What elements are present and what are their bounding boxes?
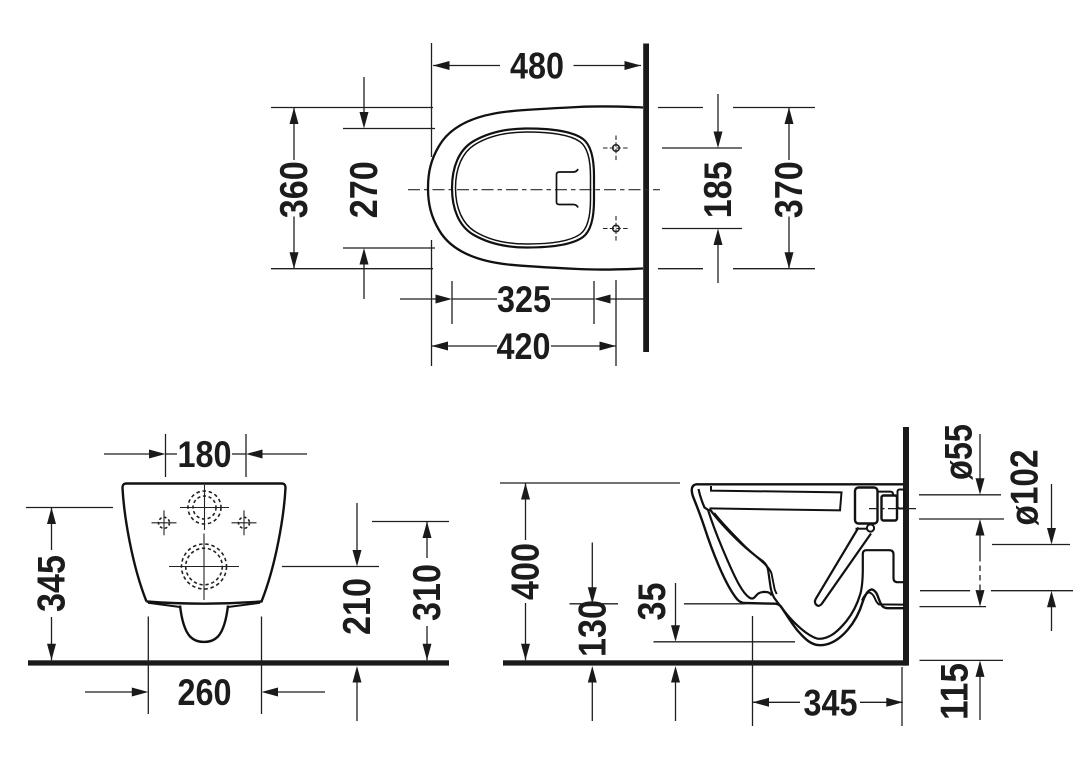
svg-text:345: 345 <box>804 683 858 724</box>
svg-text:115: 115 <box>934 663 977 720</box>
svg-text:345: 345 <box>31 555 74 612</box>
svg-text:185: 185 <box>697 161 740 218</box>
svg-text:400: 400 <box>505 543 548 600</box>
svg-text:ø55: ø55 <box>938 424 981 480</box>
svg-text:130: 130 <box>572 600 615 657</box>
svg-text:180: 180 <box>178 434 232 475</box>
svg-text:210: 210 <box>336 578 379 635</box>
svg-text:ø102: ø102 <box>1004 450 1047 526</box>
svg-text:310: 310 <box>406 564 449 621</box>
svg-text:480: 480 <box>510 46 564 87</box>
svg-text:370: 370 <box>768 161 811 218</box>
svg-text:360: 360 <box>273 161 316 218</box>
svg-text:420: 420 <box>497 326 551 367</box>
svg-text:35: 35 <box>631 583 674 621</box>
svg-text:270: 270 <box>343 161 386 218</box>
svg-text:260: 260 <box>178 672 232 713</box>
svg-text:325: 325 <box>497 279 551 320</box>
